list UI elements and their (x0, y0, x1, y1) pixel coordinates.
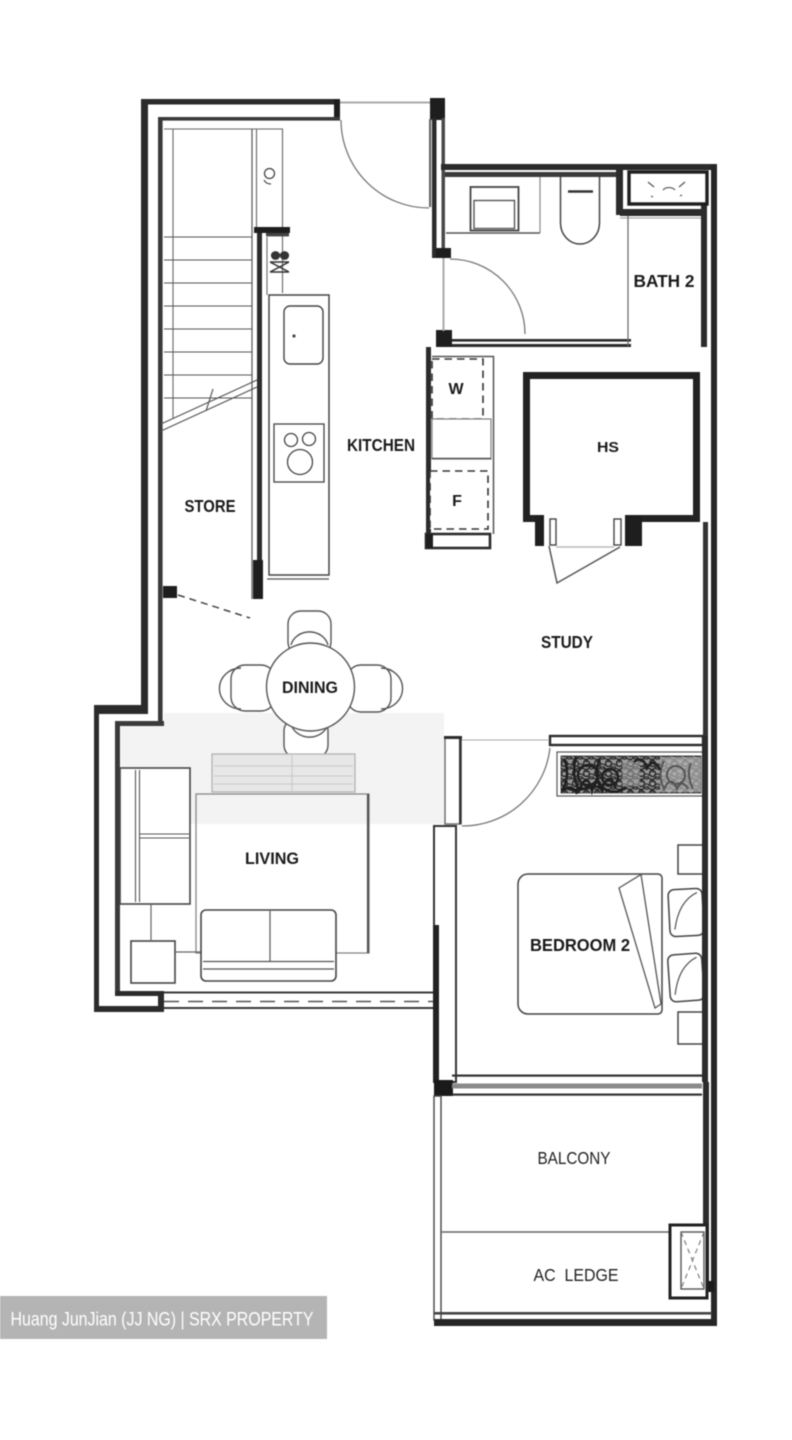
svg-text:F: F (452, 493, 462, 510)
svg-text:STORE: STORE (185, 496, 236, 516)
svg-text:STUDY: STUDY (541, 632, 593, 652)
svg-text:BEDROOM 2: BEDROOM 2 (530, 935, 630, 955)
svg-text:HS: HS (597, 439, 619, 456)
svg-text:Huang JunJian (JJ NG) | SRX PR: Huang JunJian (JJ NG) | SRX PROPERTY (11, 1310, 314, 1331)
svg-text:BALCONY: BALCONY (538, 1148, 611, 1168)
svg-text:DINING: DINING (282, 679, 338, 697)
svg-text:BATH 2: BATH 2 (634, 271, 695, 291)
svg-text:LIVING: LIVING (245, 850, 299, 868)
svg-text:W: W (448, 381, 464, 398)
svg-text:KITCHEN: KITCHEN (347, 435, 415, 455)
svg-text:AC LEDGE: AC LEDGE (534, 1265, 619, 1285)
